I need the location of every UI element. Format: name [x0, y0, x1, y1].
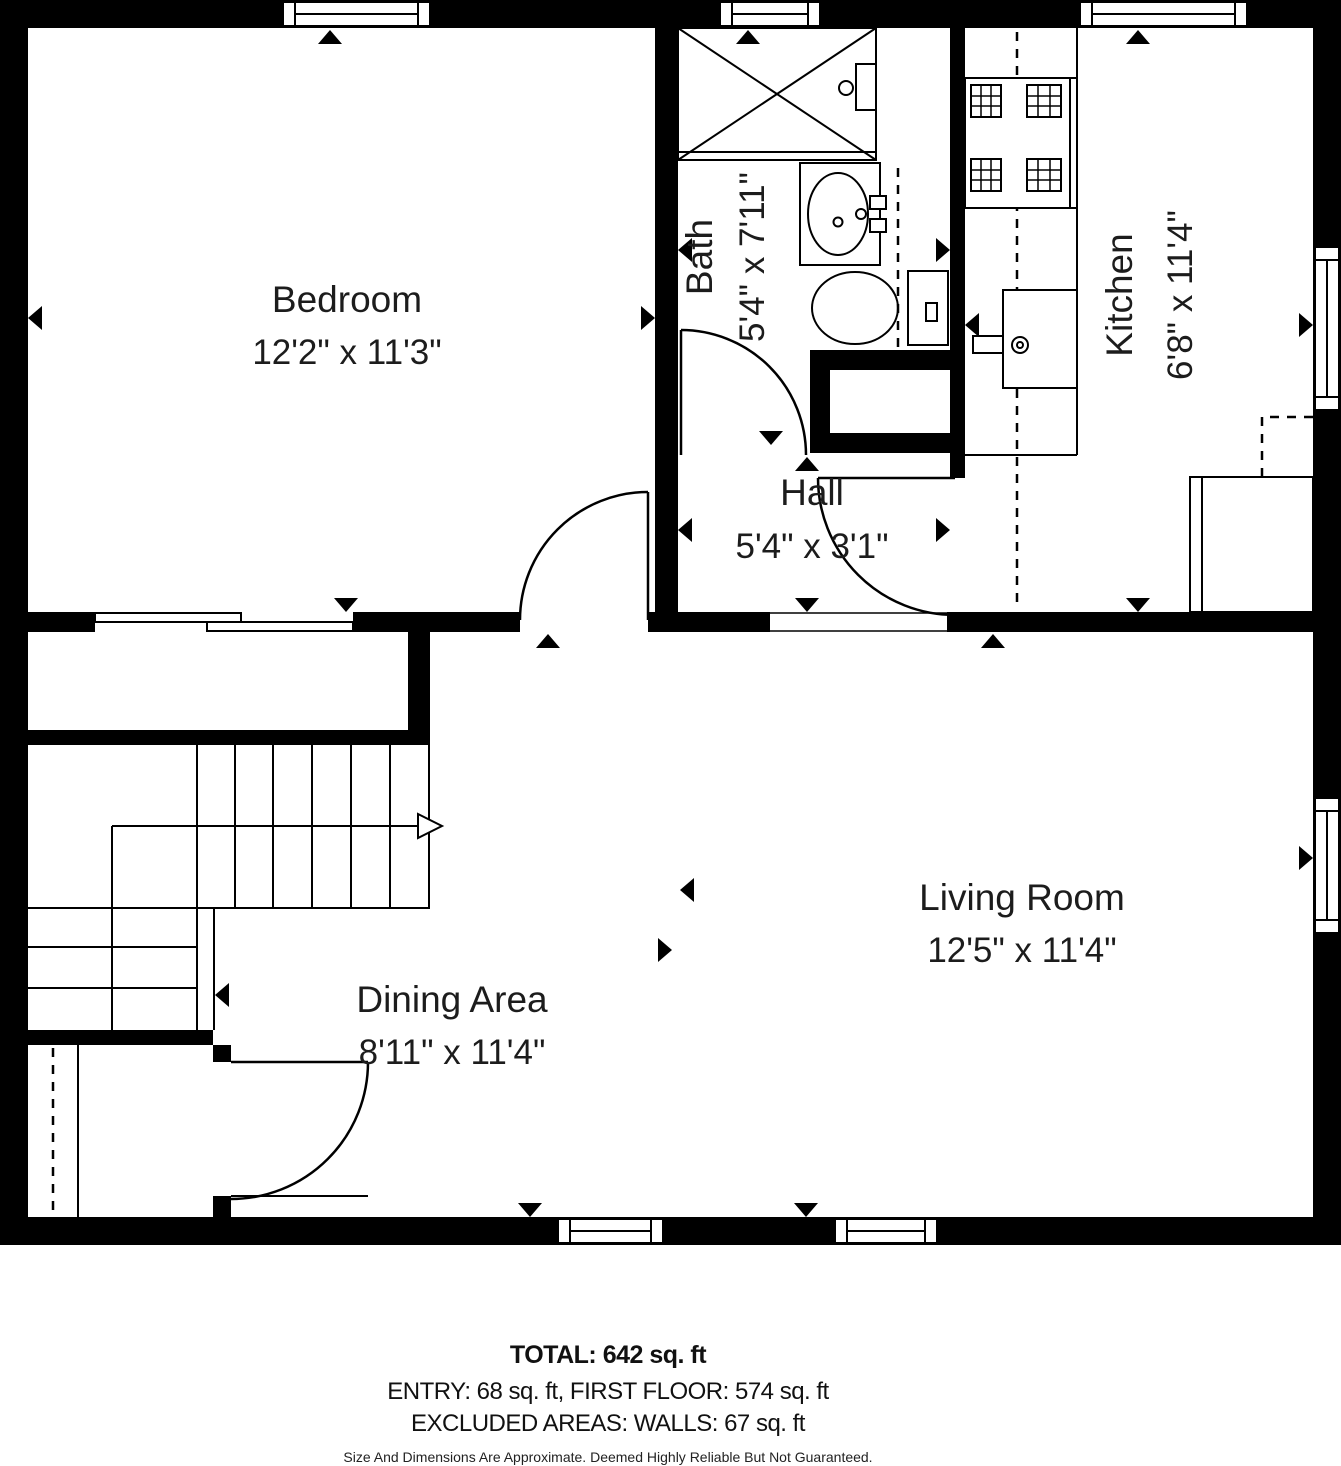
bedroom-sliding-door [95, 613, 353, 631]
hall-label: Hall [780, 472, 844, 513]
bedroom-door-swing [520, 492, 648, 620]
kitchen-peninsula-counter [1190, 477, 1313, 612]
living-room-label: Living Room [919, 877, 1125, 918]
excluded-areas-text: EXCLUDED AREAS: WALLS: 67 sq. ft [411, 1410, 806, 1437]
dining-window-icon [558, 1219, 663, 1243]
refrigerator-hidden-icon [1262, 417, 1313, 477]
shower-icon [678, 28, 876, 160]
floor-plan-page: Bedroom 12'2" x 11'3" Bath 5'4" x 7'11" … [0, 0, 1341, 1466]
dining-area-dims: 8'11" x 11'4" [359, 1033, 546, 1072]
kitchen-sink-icon [973, 290, 1077, 388]
living-window-icon [835, 1219, 937, 1243]
living-room-dims: 12'5" x 11'4" [927, 931, 1116, 970]
stove-icon [965, 78, 1077, 208]
toilet-icon [812, 271, 948, 345]
kitchen-side-window-icon [1315, 247, 1339, 410]
bath-dims: 5'4" x 7'11" [733, 172, 772, 342]
hall-dims: 5'4" x 3'1" [735, 527, 888, 566]
kitchen-dims: 6'8" x 11'4" [1161, 210, 1200, 380]
kitchen-label: Kitchen [1099, 233, 1140, 356]
hall-opening [770, 613, 947, 631]
bedroom-dims: 12'2" x 11'3" [252, 333, 441, 372]
floor-plan-drawing: Bedroom 12'2" x 11'3" Bath 5'4" x 7'11" … [0, 0, 1341, 1466]
entry-door-swing [231, 1062, 368, 1199]
bath-window-icon [720, 2, 820, 26]
dining-area-label: Dining Area [356, 979, 548, 1020]
kitchen-window-icon [1080, 2, 1247, 26]
bedroom-label: Bedroom [272, 279, 422, 320]
bedroom-window-icon [283, 2, 430, 26]
bath-sink-icon [800, 163, 886, 265]
total-area-text: TOTAL: 642 sq. ft [510, 1341, 707, 1369]
bath-fixtures [678, 28, 948, 348]
area-breakdown-text: ENTRY: 68 sq. ft, FIRST FLOOR: 574 sq. f… [387, 1378, 829, 1405]
bath-door-swing [681, 330, 806, 455]
entry-closet-lines [53, 1045, 78, 1217]
bath-label: Bath [679, 219, 720, 295]
living-side-window-icon [1315, 798, 1339, 933]
stairs-direction-arrow [112, 814, 442, 838]
area-summary: TOTAL: 642 sq. ft ENTRY: 68 sq. ft, FIRS… [343, 1341, 872, 1465]
disclaimer-text: Size And Dimensions Are Approximate. Dee… [343, 1449, 872, 1465]
